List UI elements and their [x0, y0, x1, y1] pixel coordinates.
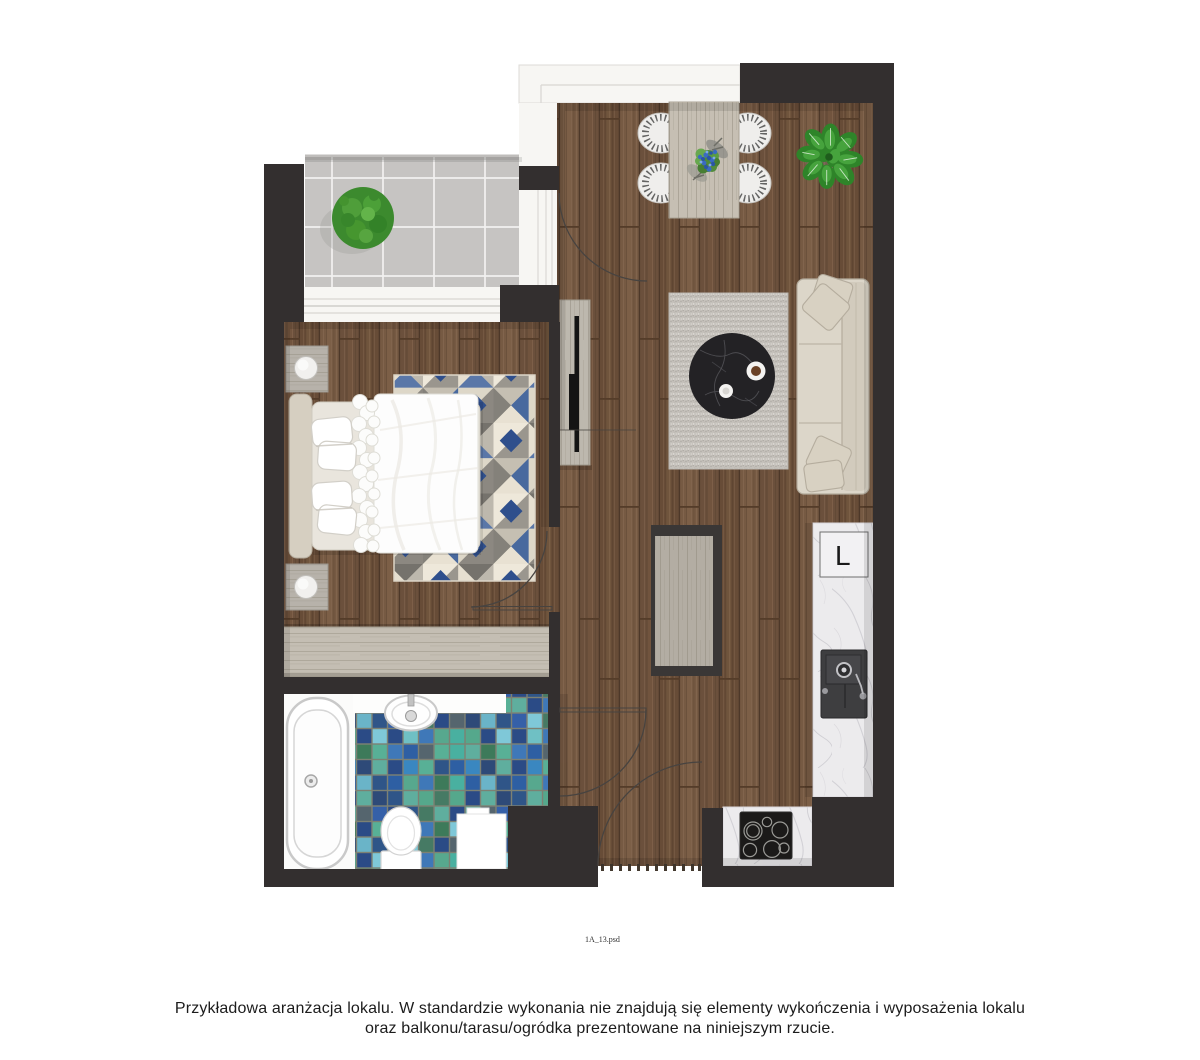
svg-text:L: L [835, 540, 851, 571]
